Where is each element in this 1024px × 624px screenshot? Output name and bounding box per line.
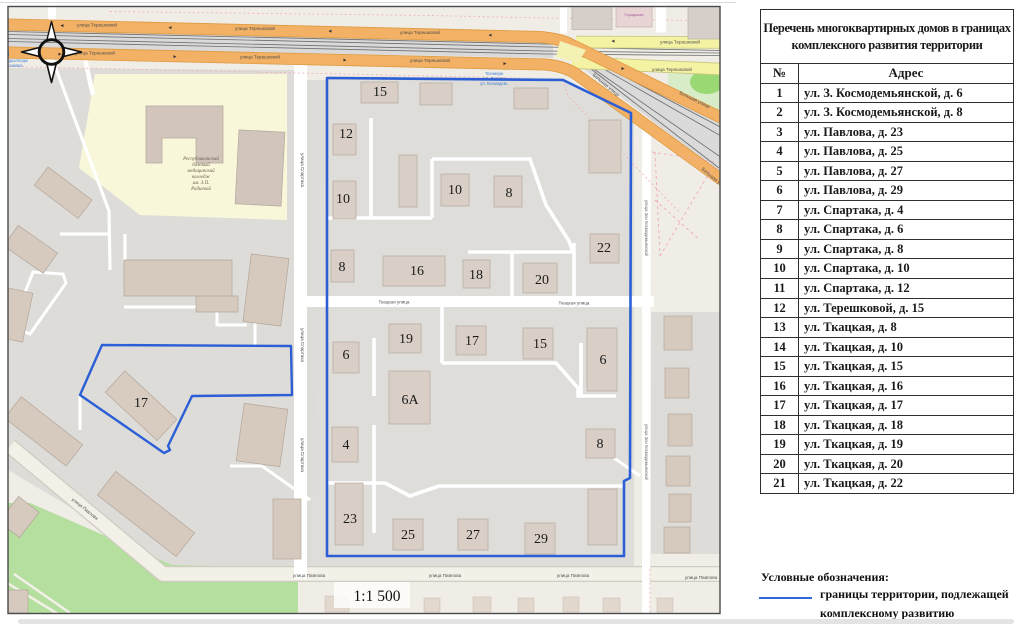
svg-text:29: 29 bbox=[534, 532, 548, 547]
svg-text:15: 15 bbox=[533, 337, 547, 352]
svg-text:Ткацкая улица: Ткацкая улица bbox=[379, 300, 410, 305]
svg-text:◄: ◄ bbox=[328, 29, 333, 35]
svg-text:10: 10 bbox=[448, 183, 462, 198]
svg-text:12: 12 bbox=[339, 127, 353, 142]
svg-text:25: 25 bbox=[401, 528, 415, 543]
svg-text:4: 4 bbox=[343, 438, 350, 453]
svg-text:►: ► bbox=[173, 54, 178, 60]
svg-text:улица Павлова: улица Павлова bbox=[557, 573, 590, 578]
svg-text:18: 18 bbox=[469, 268, 483, 283]
svg-text:◄: ◄ bbox=[168, 25, 173, 31]
svg-text:улица Павлова: улица Павлова bbox=[429, 573, 462, 578]
svg-text:улица Зои Космодемьянской: улица Зои Космодемьянской bbox=[644, 424, 649, 481]
svg-text:улица Терешковой: улица Терешковой bbox=[660, 39, 700, 45]
svg-text:улица Терешковой: улица Терешковой bbox=[77, 22, 117, 28]
svg-text:◄: ◄ bbox=[488, 33, 493, 39]
svg-text:23: 23 bbox=[343, 512, 357, 527]
svg-text:улица Терешковой: улица Терешковой bbox=[400, 29, 440, 35]
svg-text:►: ► bbox=[343, 58, 348, 64]
svg-text:►: ► bbox=[503, 61, 508, 67]
svg-text:◄: ◄ bbox=[60, 23, 65, 29]
svg-text:им. З.П.: им. З.П. bbox=[193, 181, 210, 186]
svg-text:медицинский: медицинский bbox=[186, 168, 215, 174]
svg-text:6: 6 bbox=[343, 348, 350, 363]
svg-text:17: 17 bbox=[134, 396, 148, 411]
svg-text:Радиевой: Радиевой bbox=[190, 186, 211, 192]
svg-text:улица Терешковой: улица Терешковой bbox=[240, 54, 280, 60]
svg-text:Городская: Городская bbox=[624, 12, 643, 17]
svg-text:улица Спартака: улица Спартака bbox=[300, 328, 305, 362]
svg-text:16: 16 bbox=[410, 264, 424, 279]
svg-text:►: ► bbox=[621, 66, 626, 72]
svg-text:19: 19 bbox=[399, 332, 413, 347]
svg-text:улица Спартака: улица Спартака bbox=[300, 438, 305, 472]
svg-text:17: 17 bbox=[465, 334, 479, 349]
svg-text:Республиканский: Республиканский bbox=[182, 156, 219, 162]
svg-text:Ткацкая улица: Ткацкая улица bbox=[559, 301, 590, 306]
svg-text:6А: 6А bbox=[401, 393, 419, 408]
svg-text:улица Павлова: улица Павлова bbox=[685, 575, 718, 580]
svg-text:остановка: остановка bbox=[3, 63, 23, 68]
svg-text:улица Терешковой: улица Терешковой bbox=[410, 57, 450, 63]
svg-text:15: 15 bbox=[373, 85, 387, 100]
svg-text:8: 8 bbox=[339, 260, 346, 275]
svg-text:улица Терешковой: улица Терешковой bbox=[652, 66, 692, 72]
svg-text:улица Зои Космодемьянской: улица Зои Космодемьянской bbox=[644, 200, 649, 257]
svg-text:улица Терешковой: улица Терешковой bbox=[235, 25, 275, 31]
svg-text:8: 8 bbox=[597, 437, 604, 452]
svg-text:10: 10 bbox=[336, 192, 350, 207]
svg-text:◄: ◄ bbox=[611, 39, 616, 45]
svg-text:20: 20 bbox=[535, 273, 549, 288]
svg-text:6: 6 bbox=[600, 353, 607, 368]
svg-text:улица Спартака: улица Спартака bbox=[300, 153, 305, 187]
svg-text:ул. Космодем.: ул. Космодем. bbox=[480, 81, 508, 86]
svg-text:8: 8 bbox=[506, 186, 513, 201]
svg-text:22: 22 bbox=[597, 241, 611, 256]
svg-text:27: 27 bbox=[466, 528, 480, 543]
svg-text:базовый: базовый bbox=[192, 162, 210, 168]
svg-text:1:1 500: 1:1 500 bbox=[354, 588, 401, 605]
svg-text:улица Павлова: улица Павлова bbox=[293, 573, 326, 578]
svg-text:колледж: колледж bbox=[192, 175, 211, 180]
